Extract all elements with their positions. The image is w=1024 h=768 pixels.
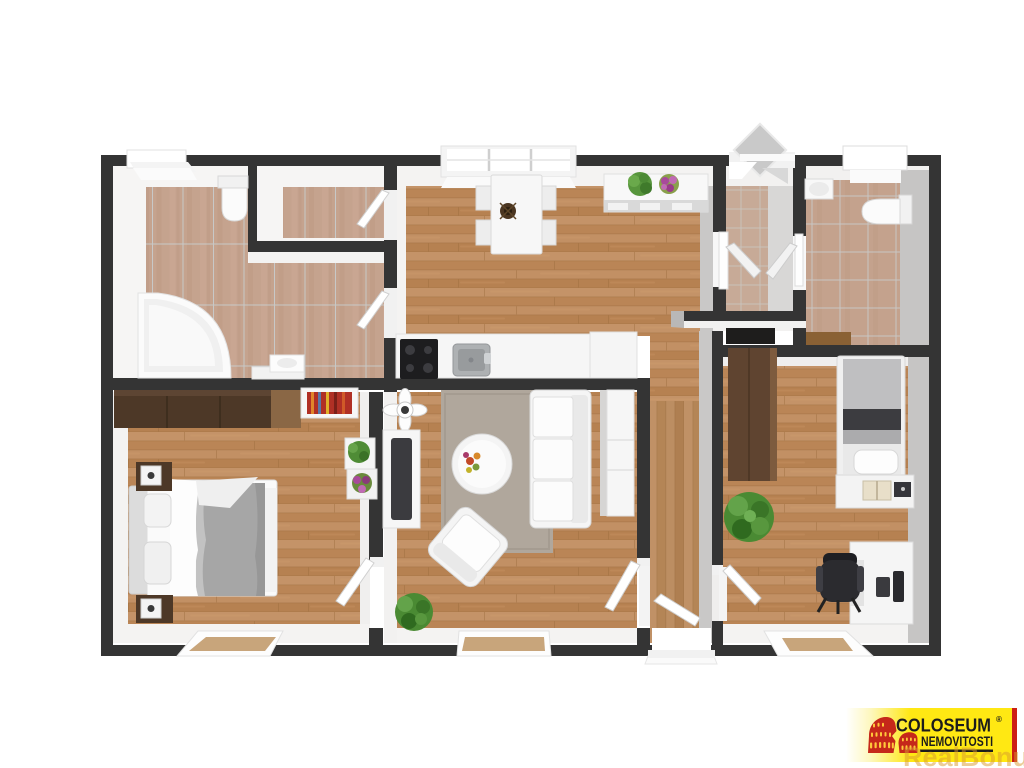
svg-text:RealBonus.cz: RealBonus.cz [903,742,1024,768]
svg-text:®: ® [996,715,1002,724]
svg-text:COLOSEUM: COLOSEUM [896,716,991,736]
